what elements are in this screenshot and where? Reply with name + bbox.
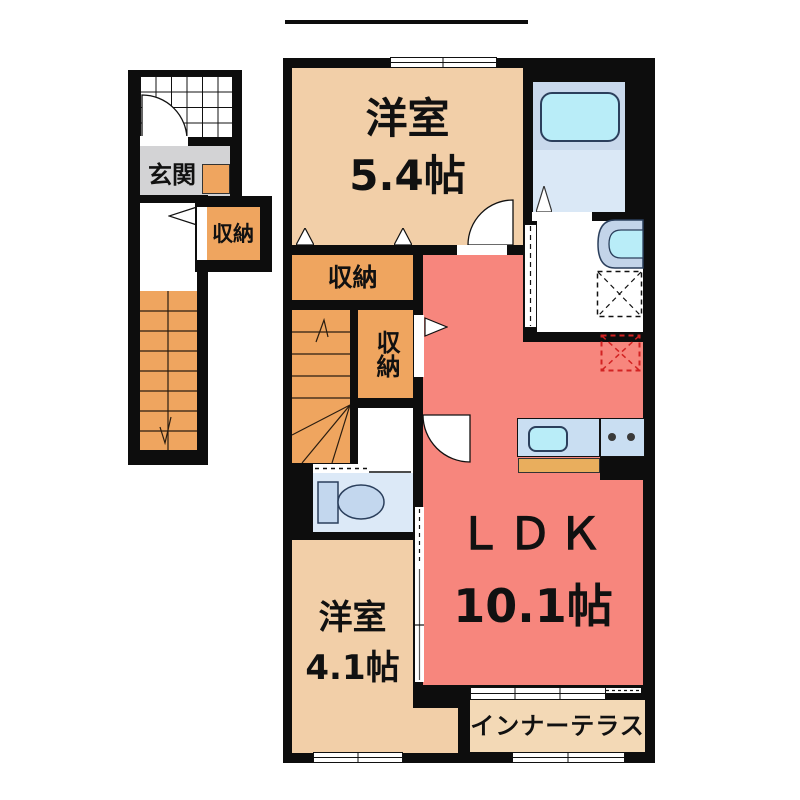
kitchen-sink-icon bbox=[528, 426, 568, 452]
bedroom-upper-door-arc-icon bbox=[467, 199, 514, 246]
bedroom-upper-name: 洋室 bbox=[292, 90, 523, 148]
washing-machine-pan-icon bbox=[596, 270, 643, 318]
terrace-window-icon bbox=[470, 687, 606, 700]
hall-floor bbox=[358, 408, 413, 465]
closet-mid-door bbox=[414, 315, 424, 377]
closet-mid-door-arrow-icon bbox=[424, 317, 448, 337]
kitchen-wall-block bbox=[600, 457, 645, 480]
ldk-size: 10.1帖 bbox=[423, 576, 643, 636]
kitchen-counter-ledge bbox=[518, 458, 600, 473]
stove-burners-icon bbox=[600, 418, 645, 457]
bathtub-icon bbox=[540, 92, 620, 142]
bedroom-upper-door-sill bbox=[457, 245, 507, 255]
refrigerator-space-icon bbox=[600, 334, 641, 372]
toilet-opening-icon bbox=[313, 464, 413, 473]
closet-door-marker-icon bbox=[296, 228, 314, 245]
closet-mid-label: 収納 bbox=[363, 314, 409, 394]
bedroom-upper-size: 5.4帖 bbox=[292, 148, 523, 204]
entrance-door-arc-icon bbox=[140, 92, 190, 141]
entrance-door-sill bbox=[140, 136, 188, 146]
bathroom-door-sill bbox=[532, 212, 592, 221]
closet-door-marker-icon bbox=[394, 228, 412, 245]
bedroom-lower-name: 洋室 bbox=[292, 595, 413, 641]
bedroom-lower-size: 4.1帖 bbox=[292, 645, 413, 691]
closet-upper-label: 収納 bbox=[292, 262, 413, 294]
bedroom-upper-window-icon bbox=[390, 57, 497, 68]
terrace-bottom-window-icon bbox=[512, 752, 625, 763]
terrace-side-alcove bbox=[413, 708, 458, 753]
eaves-line bbox=[285, 20, 528, 24]
inner-terrace-label: インナーテラス bbox=[470, 709, 645, 743]
floor-plan-canvas: 玄関 収納 洋室 5.4帖 ＬＤＫ bbox=[0, 0, 800, 800]
hall-ldk-partition-icon bbox=[415, 507, 424, 682]
entrance-closet-door-arrow-icon bbox=[168, 206, 198, 226]
ldk-name: ＬＤＫ bbox=[423, 506, 643, 564]
stairs-main-icon bbox=[292, 310, 350, 463]
entrance-closet-label: 収納 bbox=[198, 221, 268, 247]
washroom-door-icon bbox=[524, 224, 537, 328]
stairs-entrance-icon bbox=[140, 291, 197, 450]
terrace-left-wall bbox=[458, 688, 470, 763]
bedroom-lower-window-icon bbox=[313, 752, 403, 763]
entrance-label: 玄関 bbox=[140, 161, 204, 189]
bathroom-door-marker-icon bbox=[536, 186, 552, 212]
ldk-door-arc-icon bbox=[422, 414, 471, 463]
washbasin-icon bbox=[596, 218, 644, 270]
toilet-icon bbox=[316, 480, 386, 525]
entrance-cabinet bbox=[202, 164, 230, 194]
